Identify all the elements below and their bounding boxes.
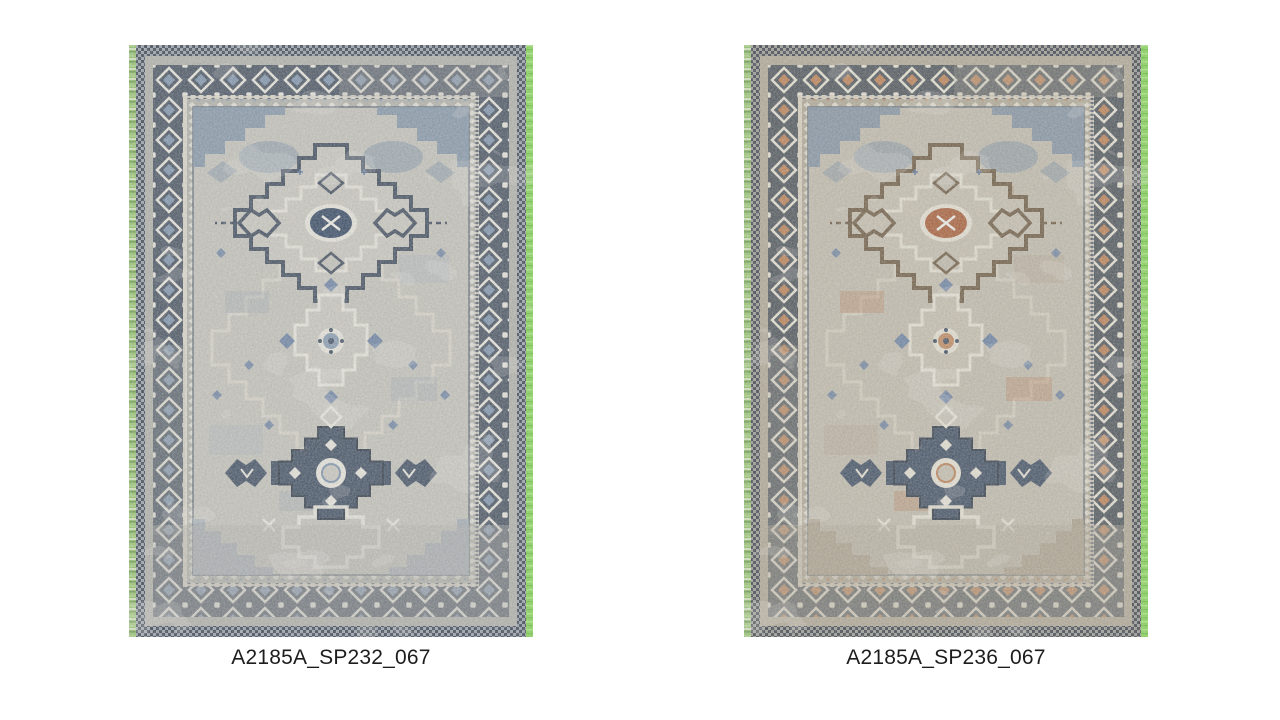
rug-photo-cool-colorway xyxy=(129,45,533,637)
page-background: A2185A_SP232_067 xyxy=(0,0,1280,720)
rug-photo-warm-colorway xyxy=(744,45,1148,637)
rug-caption-right: A2185A_SP236_067 xyxy=(744,646,1148,670)
rug-texture-overlay xyxy=(129,45,533,637)
rug-texture-overlay xyxy=(744,45,1148,637)
rug-caption-left: A2185A_SP232_067 xyxy=(129,646,533,670)
rug-product-left: A2185A_SP232_067 xyxy=(129,45,533,670)
rug-artwork xyxy=(744,45,1148,637)
rug-artwork xyxy=(129,45,533,637)
rug-product-right: A2185A_SP236_067 xyxy=(744,45,1148,670)
